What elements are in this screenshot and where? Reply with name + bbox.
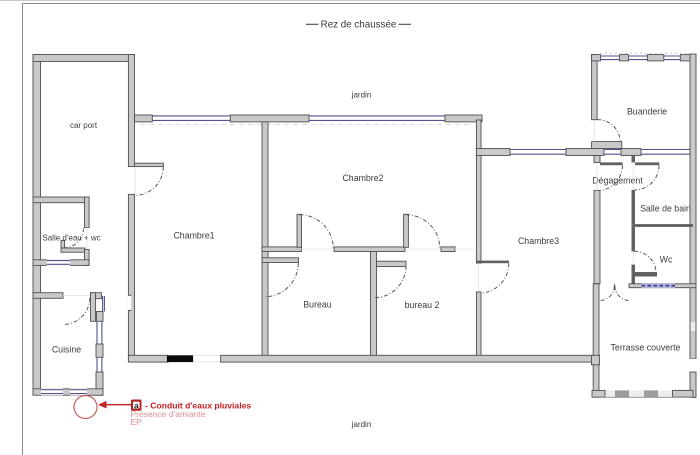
svg-text:Wc: Wc	[660, 255, 673, 265]
svg-text:Salle d'eau + wc: Salle d'eau + wc	[42, 234, 100, 243]
svg-text:Salle de bain: Salle de bain	[640, 204, 691, 214]
svg-text:Bureau: Bureau	[303, 300, 331, 310]
svg-text:Chambre3: Chambre3	[518, 236, 559, 246]
svg-text:Chambre1: Chambre1	[173, 231, 214, 241]
svg-text:jardin: jardin	[351, 420, 372, 429]
svg-text:bureau 2: bureau 2	[405, 300, 440, 310]
svg-text:Cuisine: Cuisine	[52, 344, 81, 354]
svg-text:Dégagement: Dégagement	[592, 176, 643, 186]
svg-text:Chambre2: Chambre2	[342, 173, 383, 183]
svg-text:Buanderie: Buanderie	[627, 107, 667, 117]
svg-text:Terrasse couverte: Terrasse couverte	[611, 343, 681, 353]
svg-text:EP: EP	[131, 417, 143, 427]
svg-text:car port: car port	[70, 121, 98, 130]
svg-text:Rez de chaussée: Rez de chaussée	[321, 20, 397, 31]
svg-text:jardin: jardin	[351, 90, 372, 99]
